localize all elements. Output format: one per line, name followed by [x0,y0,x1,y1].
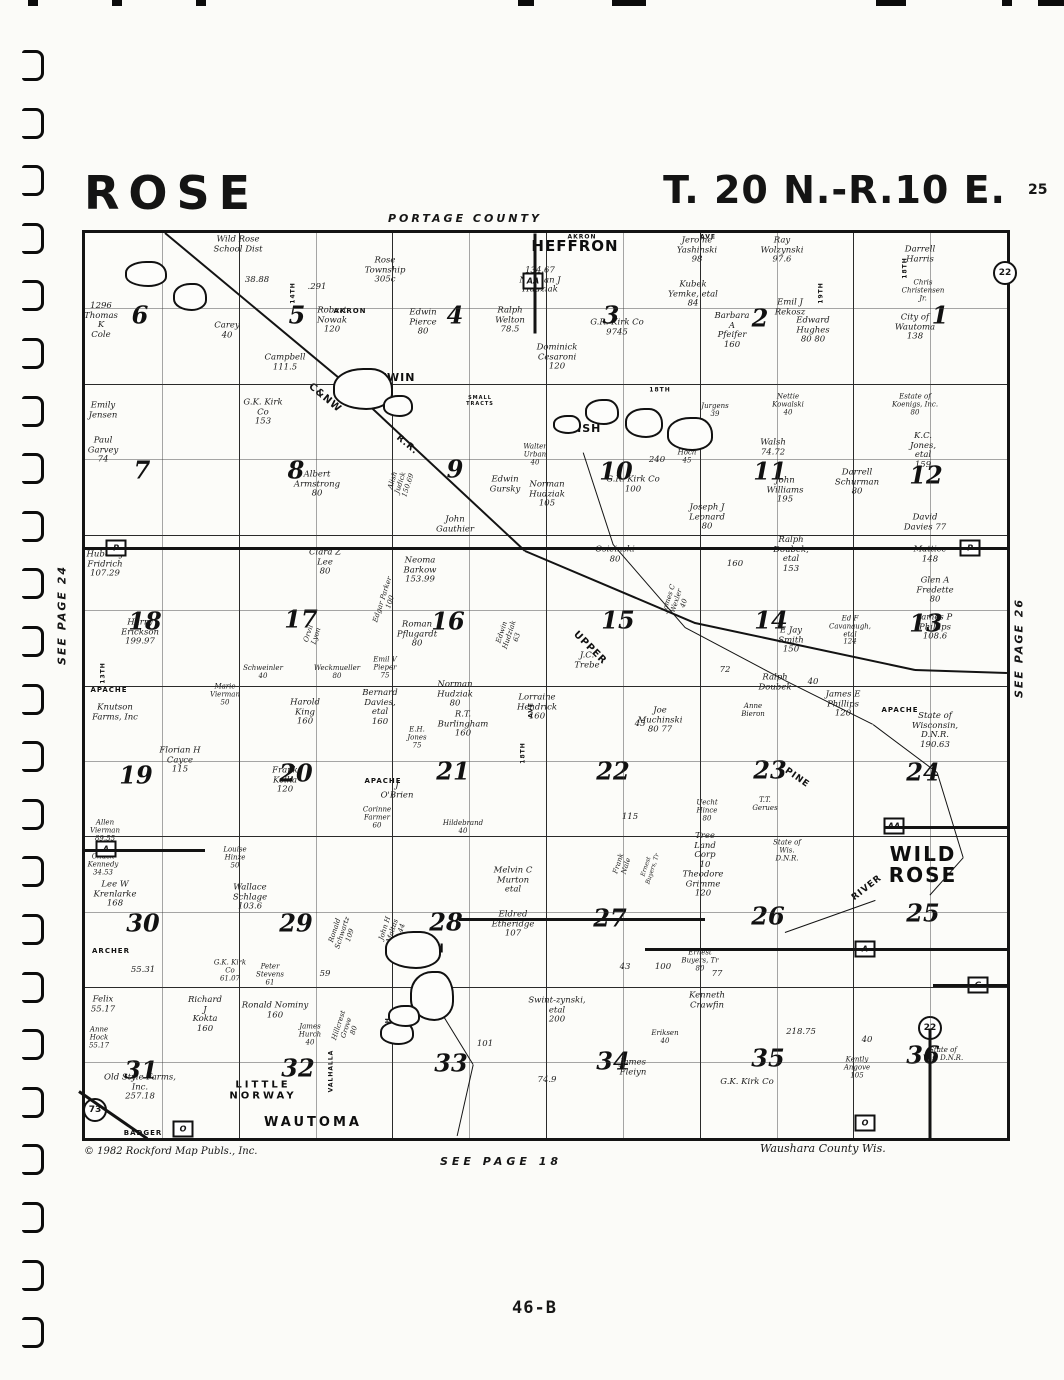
binder-hole [22,914,44,945]
road-label: APACHE [881,706,918,714]
parcel-label: Kenneth Crawfin [689,991,725,1010]
parcel-label: Richard J Kokta 160 [188,996,222,1034]
section-number: 1 [932,301,949,330]
road-label: R.R. [394,433,420,457]
north-county-label: PORTAGE COUNTY [388,212,542,225]
section-number: 3 [603,301,620,330]
parcel-label: Alish Judick 150.69 [386,468,416,499]
river-line [785,680,874,725]
section-number: 33 [434,1049,467,1078]
section-number: 13 [909,609,942,638]
river-line [785,900,875,933]
road-label: AVE [528,702,535,718]
section-number: 12 [909,461,942,490]
binder-hole [22,1029,44,1060]
south-county-label: Waushara County Wis. [760,1142,886,1155]
parcel-label: 160 [727,560,743,570]
parcel-label: G.K. Kirk Co 153 [243,399,282,428]
parcel-label: Ralph Doubek, etal 153 [773,536,809,574]
grid-line [85,459,1007,460]
highway-line [885,826,1007,829]
section-number: 25 [906,899,939,928]
section-number: 32 [281,1054,314,1083]
parcel-label: Clara Z Lee 80 [309,549,341,578]
parcel-label: Edwin Pierce 80 [409,309,436,338]
parcel-label: Kubek Yemke, etal 84 [668,281,718,310]
highway-line [459,918,705,921]
parcel-label: Lee W Krenlarke 168 [94,881,137,910]
section-number: 26 [751,902,784,931]
parcel-label: Swint-zynski, etal 200 [528,997,585,1026]
parcel-label: E.H. Jones 75 [407,726,426,749]
section-number: 10 [599,457,632,486]
parcel-label: State of Wis. D.N.R. [773,839,801,862]
scan-artifact [28,0,38,6]
parcel-label: Barbara A Pfeifer 160 [714,312,749,350]
parcel-label: Joe Muchinski 80 77 [638,707,683,736]
parcel-label: City of Wautoma 138 [895,314,935,343]
section-number: 34 [596,1047,629,1076]
road-label: UPPER [571,629,609,667]
grid-line [85,1062,1007,1063]
lake-shape [173,283,207,311]
scan-artifact [1038,0,1064,6]
parcel-label: 72 [720,666,731,676]
railroad-line [915,669,1007,674]
binder-hole [22,280,44,311]
section-number: 7 [134,456,151,485]
parcel-label: 240 [649,456,665,466]
section-number: 16 [431,607,464,636]
parcel-label: Walter Urban 40 [523,443,546,466]
grid-line [469,233,470,1138]
scan-artifact [1002,0,1012,6]
lake-shape [388,1005,420,1027]
road-label: VALHALLA [328,1050,335,1093]
parcel-label: Melvin C Murton etal [494,867,533,896]
section-number: 20 [279,759,312,788]
highway-line [534,233,537,333]
parcel-label: Paul Garvey 74 [88,437,119,466]
corner-page-number: 25 [1028,182,1047,198]
parcel-label: Edwin Hudziak 63 [494,617,525,652]
road-label: ARCHER [92,947,130,955]
lake-shape [385,931,441,969]
parcel-label: 100 [655,963,671,973]
highway-line [85,849,205,852]
road-label: 18TH [649,387,670,394]
binder-hole [22,626,44,657]
parcel-label: Eldred Etheridge 107 [492,911,535,940]
parcel-label: 218.75 [786,1028,816,1038]
binder-hole [22,396,44,427]
parcel-label: Tree Land Corp 10 [694,832,716,870]
parcel-label: Campbell 111.5 [265,353,306,372]
section-number: 17 [284,605,317,634]
grid-line [85,308,1007,309]
parcel-label: Ronald Nominy 160 [242,1001,309,1020]
parcel-label: Knutson Farms, Inc [92,703,138,722]
parcel-label: Felix 55.17 [91,995,115,1014]
highway-line [929,1028,932,1138]
parcel-label: 38.88 [245,276,269,286]
parcel-label: Anne Bieron [741,703,765,719]
section-number: 4 [447,301,464,330]
grid-line [85,987,1007,988]
see-page-18-label: SEE PAGE 18 [440,1155,562,1168]
road-label: 18TH [902,257,909,278]
road-marker: O [855,1115,876,1132]
parcel-label: Anne Hock 55.17 [89,1026,109,1049]
road-marker: O [173,1121,194,1138]
section-number: 19 [119,761,152,790]
road-label: APACHE [364,777,401,785]
binder-hole [22,1202,44,1233]
parcel-label: 43 [620,963,631,973]
section-number: 11 [753,457,786,486]
parcel-label: 55.31 [131,966,155,976]
parcel-label: 77 [712,970,723,980]
town-label: WILD ROSE [889,844,957,886]
parcel-label: Rose Township 305c [365,257,406,286]
parcel-label: Edgar Parker 100 [372,576,402,626]
lake-shape [125,261,167,287]
binder-hole [22,799,44,830]
page-number-label: 46-B [512,1298,557,1318]
lake-shape [625,408,663,438]
grid-line [85,610,1007,611]
see-page-26-label: SEE PAGE 26 [1013,598,1026,698]
parcel-label: Schweinler 40 [243,665,283,681]
town-label: WAUTOMA [264,1116,362,1130]
road-label: RIVER [850,873,884,903]
parcel-label: Jerome Yashinski 98 [677,237,717,266]
parcel-label: Joseph J Leonard 80 [689,504,725,533]
binder-hole [22,1144,44,1175]
binder-hole [22,453,44,484]
lake-shape [383,395,413,417]
parcel-label: Lorraine Hendrick 160 [517,694,557,723]
lake-shape [553,415,581,434]
binder-hole [22,684,44,715]
grid-line [930,233,931,1138]
section-number: 8 [288,456,305,485]
parcel-label: G.K. Kirk Co 61.07 [214,959,246,982]
parcel-label: T.T. Gerues [752,797,777,813]
binder-hole [22,108,44,139]
binder-hole [22,223,44,254]
river-line [873,724,938,773]
parcel-label: Darrell Schurman 80 [835,469,879,498]
parcel-label: James C Wexler 40 [661,584,692,619]
road-label: AVE [700,234,716,241]
parcel-label: .291 [308,283,327,293]
parcel-label: Edward Hughes 80 80 [796,317,830,346]
grid-line [316,233,317,1138]
binder-hole [22,338,44,369]
township-name-title: ROSE [84,166,259,220]
road-marker: 22 [993,261,1017,285]
road-label: 14TH [290,282,297,303]
parcel-label: Peter Stevens 61 [256,963,284,986]
parcel-label: David Davies 77 [904,513,946,532]
parcel-label: 101 [477,1040,493,1050]
grid-line [85,836,1007,837]
highway-line [933,984,1007,987]
parcel-label: Estate of Koenigs, Inc. 80 [892,393,938,416]
scanned-plat-map-page: ROSE T. 20 N.-R.10 E. 25 PORTAGE COUNTY … [0,0,1064,1380]
binder-hole [22,741,44,772]
lake-shape [585,399,619,425]
lake-shape [667,417,713,451]
railroad-line [695,622,915,671]
parcel-label: 40 [862,1036,873,1046]
section-number: 31 [124,1056,157,1085]
scan-artifact [518,0,534,6]
township-range-title: T. 20 N.-R.10 E. [663,168,1006,212]
see-page-24-label: SEE PAGE 24 [56,565,69,665]
town-label: HEFFRON [531,239,618,255]
section-number: 36 [906,1041,939,1070]
scan-artifact [876,0,906,6]
binder-hole [22,1087,44,1118]
binder-hole [22,511,44,542]
parcel-label: Ralph Welton 78.5 [495,307,525,336]
binder-hole [22,1317,44,1348]
parcel-label: R.T. Burlingham 160 [438,711,489,740]
road-label: 19TH [818,282,825,303]
grid-line [777,233,778,1138]
copyright-line: © 1982 Rockford Map Publs., Inc. [84,1146,258,1157]
section-number: 29 [279,909,312,938]
section-number: 35 [751,1044,784,1073]
binder-hole [22,165,44,196]
road-label: PINE [783,766,811,790]
parcel-label: Kently Angove 105 [844,1056,870,1079]
parcel-label: Louise Hinze 50 [223,846,246,869]
parcel-label: Ernest Buyers, Tr [639,851,662,885]
highway-line [645,948,1007,951]
parcel-label: James Hurch 40 [299,1023,321,1046]
scan-artifact [196,0,206,6]
parcel-label: State of Wisconsin, D.N.R. 190.63 [912,712,958,750]
grid-line [85,384,1007,385]
parcel-label: Dominick Cesaroni 120 [537,344,578,373]
parcel-label: Glen A Fredette 80 [916,577,953,606]
parcel-label: Jurgens 39 [701,403,728,419]
parcel-label: 115 [622,813,638,823]
parcel-label: Carey 40 [214,321,239,340]
grid-line [162,233,163,1138]
binder-hole [22,856,44,887]
parcel-label: Weckmueller 80 [314,665,360,681]
road-label: APACHE [90,686,127,694]
section-number: 18 [128,607,161,636]
parcel-label: 45 [635,720,646,730]
parcel-label: Walsh 74.72 [760,438,786,457]
parcel-label: Theodore Grimme 120 [683,871,724,900]
road-label: 13TH [100,662,107,683]
parcel-label: Neoma Barkow 153.99 [404,557,437,586]
parcel-label: Eriksen 40 [651,1030,678,1046]
grid-line [85,761,1007,762]
scan-artifact [612,0,646,6]
parcel-label: Emily Jensen [89,401,118,420]
section-number: 30 [126,909,159,938]
plat-map-frame: Wild Rose School Dist38.88.291Rose Towns… [82,230,1010,1141]
parcel-label: 59 [320,970,331,980]
grid-line [85,686,1007,687]
scan-artifact [112,0,122,6]
road-label: SMALL TRACTS [466,395,494,407]
parcel-label: Corinne Farmer 60 [363,806,391,829]
parcel-label: Hillcrest Grove 80 [331,1010,363,1046]
parcel-label: Ray Wolzynski 97.6 [761,237,804,266]
section-number: 6 [132,301,149,330]
parcel-label: G.K. Kirk Co [720,1078,774,1088]
parcel-label: Ed F Cavanaugh, etal 124 [829,615,871,646]
binder-hole [22,1260,44,1291]
grid-line [623,233,624,1138]
grid-line [85,912,1007,913]
binder-hole [22,50,44,81]
parcel-label: Ronald Schwartz 109 [327,914,360,953]
parcel-label: Edwin Gursky [490,475,521,494]
parcel-label: Allen Vierman 89.55 [90,819,120,842]
section-number: 5 [289,301,306,330]
plat-map: Wild Rose School Dist38.88.291Rose Towns… [85,233,1007,1138]
parcel-label: Hildebrand 40 [443,820,483,836]
grid-line [85,535,1007,536]
highway-line [85,547,1007,550]
parcel-label: Chris Christensen Jr. [902,279,945,302]
binder-hole [22,568,44,599]
parcel-label: Marie Vierman 50 [210,683,240,706]
binder-hole [22,972,44,1003]
